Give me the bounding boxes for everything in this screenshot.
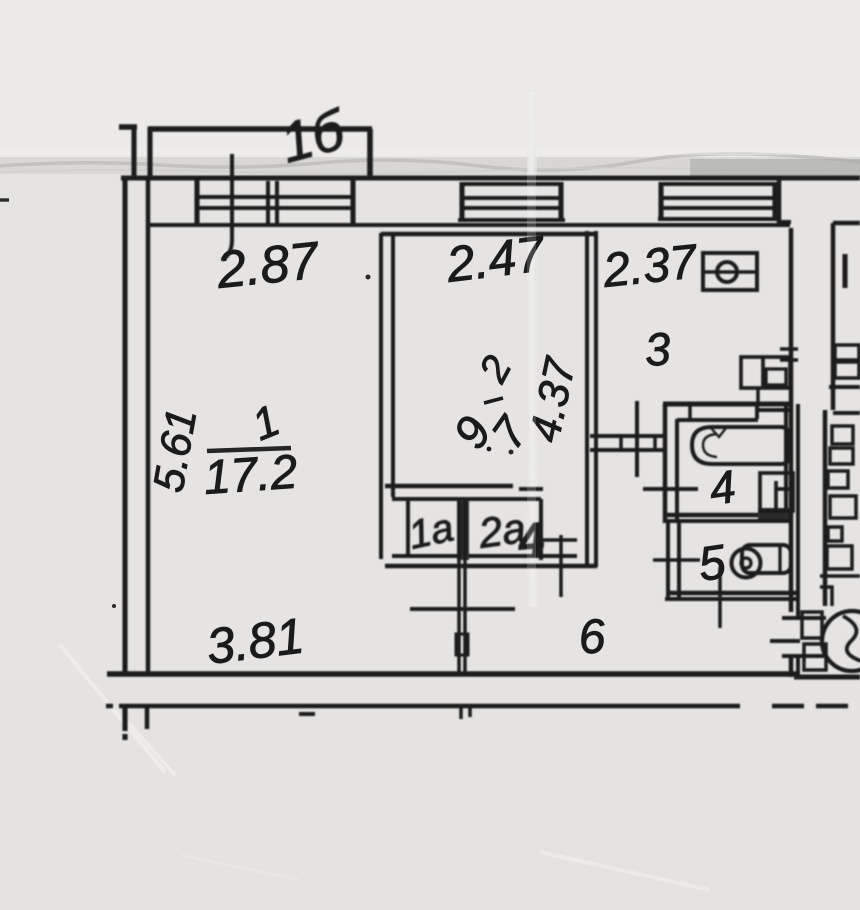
svg-text:1а: 1а <box>405 506 458 558</box>
svg-text:17.2: 17.2 <box>202 446 299 505</box>
svg-text:2.37: 2.37 <box>600 235 702 298</box>
svg-text:3: 3 <box>643 322 673 376</box>
svg-text:3.81: 3.81 <box>204 607 307 674</box>
svg-text:2.87: 2.87 <box>213 231 323 300</box>
svg-text:6: 6 <box>576 610 608 665</box>
